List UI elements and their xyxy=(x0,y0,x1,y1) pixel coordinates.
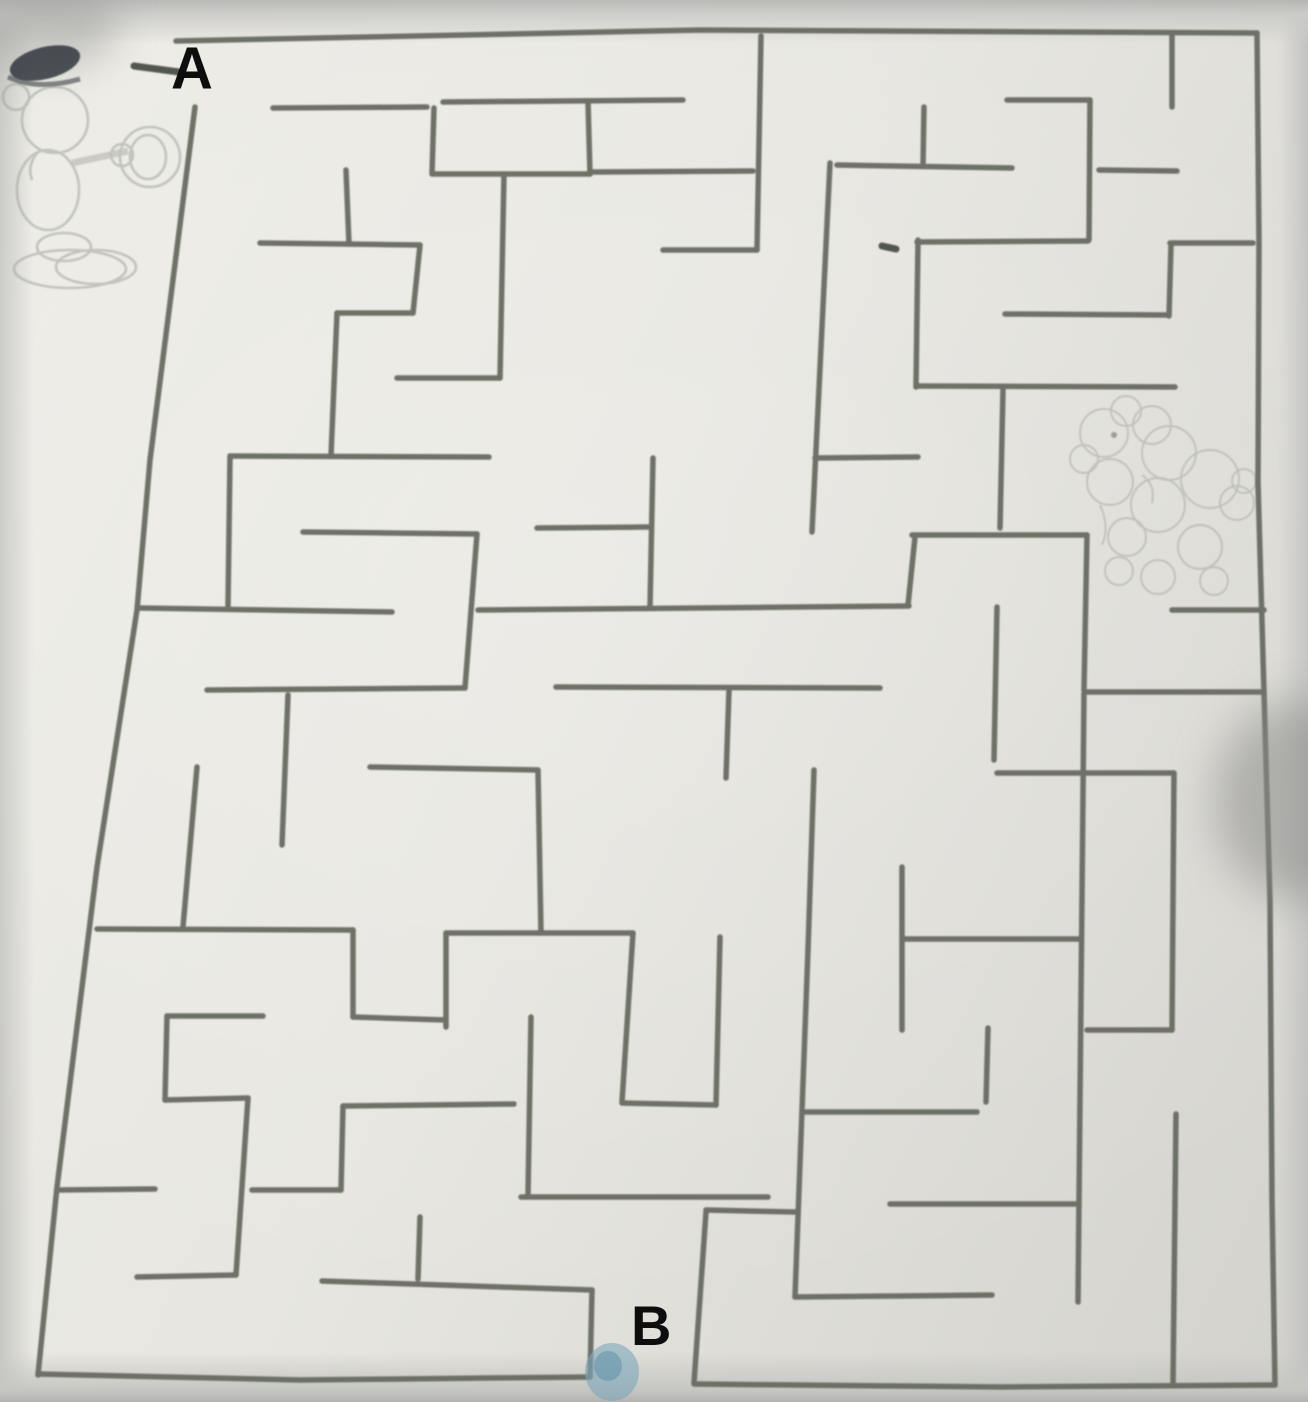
maze-wall-segment xyxy=(1089,100,1090,240)
dog-eye-dot xyxy=(1111,432,1117,438)
maze-wall-segment xyxy=(273,107,427,108)
maze-wall-segment xyxy=(1084,535,1087,690)
maze-drawing xyxy=(0,0,1308,1402)
maze-wall-segment xyxy=(528,1017,531,1195)
maze-wall-segment xyxy=(207,688,465,690)
maze-wall-segment xyxy=(1000,390,1003,528)
maze-border xyxy=(176,30,1257,41)
maze-wall-segment xyxy=(1078,693,1084,1302)
maze-wall-segment xyxy=(588,102,590,174)
maze-start-label: A xyxy=(171,39,213,98)
maze-wall-segment xyxy=(815,457,918,458)
maze-border xyxy=(694,1384,1275,1387)
maze-wall-segment xyxy=(228,457,230,606)
maze-wall-segment xyxy=(795,1295,992,1297)
maze-border xyxy=(38,1374,590,1380)
maze-wall-segment xyxy=(282,695,288,845)
maze-wall-segment xyxy=(986,1028,988,1102)
dog-sketch xyxy=(1070,396,1256,595)
maze-walls xyxy=(38,30,1275,1387)
maze-wall-segment xyxy=(260,243,420,245)
maze-photo: A B xyxy=(0,0,1308,1402)
maze-wall-segment xyxy=(343,1104,514,1106)
maze-wall-segment xyxy=(917,241,1088,242)
maze-wall-segment xyxy=(716,937,720,1105)
maze-wall-segment xyxy=(537,527,648,528)
maze-wall-segment xyxy=(322,1281,592,1290)
maze-wall-segment xyxy=(57,1189,155,1190)
maze-border xyxy=(38,107,195,1375)
maze-wall-segment xyxy=(538,770,541,933)
maze-wall-segment xyxy=(808,770,814,950)
maze-wall-segment xyxy=(556,687,880,688)
maze-wall-segment xyxy=(432,108,434,174)
maze-wall-segment xyxy=(183,767,197,927)
maze-wall-segment xyxy=(341,1106,343,1190)
maze-wall-segment xyxy=(500,174,504,378)
maze-wall-segment xyxy=(994,607,997,760)
maze-wall-segment xyxy=(353,1017,446,1020)
maze-wall-segment xyxy=(478,606,909,610)
maze-wall-segment xyxy=(140,608,392,612)
maze-wall-segment xyxy=(413,245,420,313)
maze-wall-segment xyxy=(236,1098,248,1275)
maze-wall-segment xyxy=(726,690,729,778)
maze-wall-segment xyxy=(1005,314,1168,315)
maze-wall-segment xyxy=(346,170,349,244)
maze-end-label: B xyxy=(631,1298,671,1354)
maze-wall-segment xyxy=(1173,1114,1176,1385)
maze-wall-segment xyxy=(837,165,1012,168)
maze-wall-segment xyxy=(650,458,653,608)
maze-wall-segment xyxy=(465,534,477,688)
maze-wall-segment xyxy=(1172,773,1174,1030)
maze-wall-segment xyxy=(443,100,683,102)
maze-wall-segment xyxy=(1169,245,1171,316)
maze-wall-segment xyxy=(622,933,633,1102)
maze-wall-segment xyxy=(908,537,915,605)
maze-wall-segment xyxy=(923,107,924,166)
maze-wall-segment xyxy=(165,1098,248,1100)
maze-wall-segment xyxy=(370,767,538,770)
pen-dash-mark xyxy=(882,246,896,249)
maze-wall-segment xyxy=(590,171,753,172)
maze-wall-segment xyxy=(757,36,761,250)
maze-wall-segment xyxy=(694,1212,706,1383)
maze-wall-segment xyxy=(1099,170,1177,171)
mickey-sketch xyxy=(3,39,180,288)
maze-wall-segment xyxy=(916,240,918,387)
maze-wall-segment xyxy=(331,313,337,456)
maze-wall-segment xyxy=(917,386,1175,387)
maze-wall-segment xyxy=(97,929,353,930)
maze-wall-segment xyxy=(622,1103,716,1105)
maze-wall-segment xyxy=(706,1210,795,1212)
maze-wall-segment xyxy=(812,163,830,532)
maze-wall-segment xyxy=(137,1275,236,1277)
maze-wall-segment xyxy=(165,1016,167,1100)
maze-wall-segment xyxy=(795,950,808,1297)
maze-wall-segment xyxy=(303,532,477,534)
maze-wall-segment xyxy=(230,456,489,457)
maze-wall-segment xyxy=(418,1217,420,1279)
